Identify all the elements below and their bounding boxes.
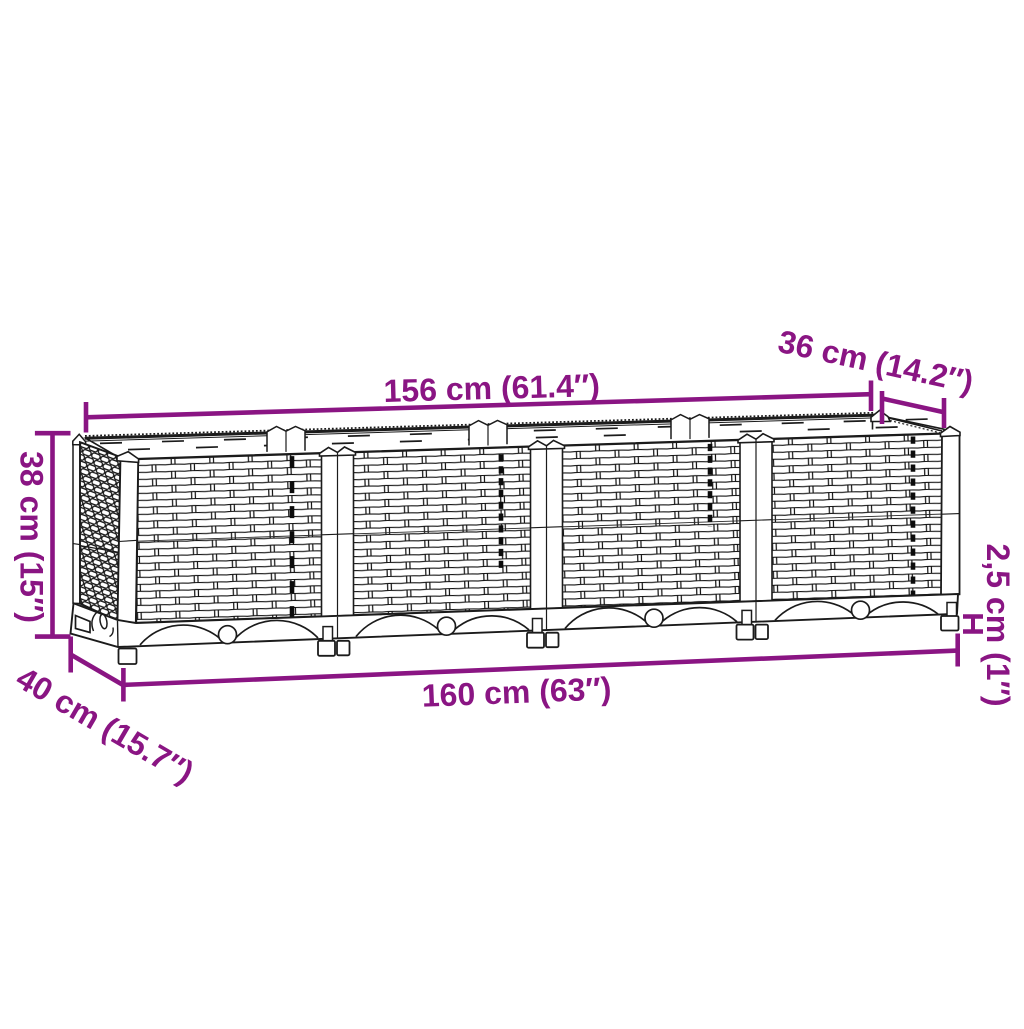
- svg-text:2,5 cm (1″): 2,5 cm (1″): [980, 544, 1016, 707]
- svg-text:38 cm (15″): 38 cm (15″): [14, 451, 50, 623]
- svg-text:156 cm (61.4″): 156 cm (61.4″): [383, 367, 600, 409]
- svg-text:160 cm (63″): 160 cm (63″): [421, 670, 612, 714]
